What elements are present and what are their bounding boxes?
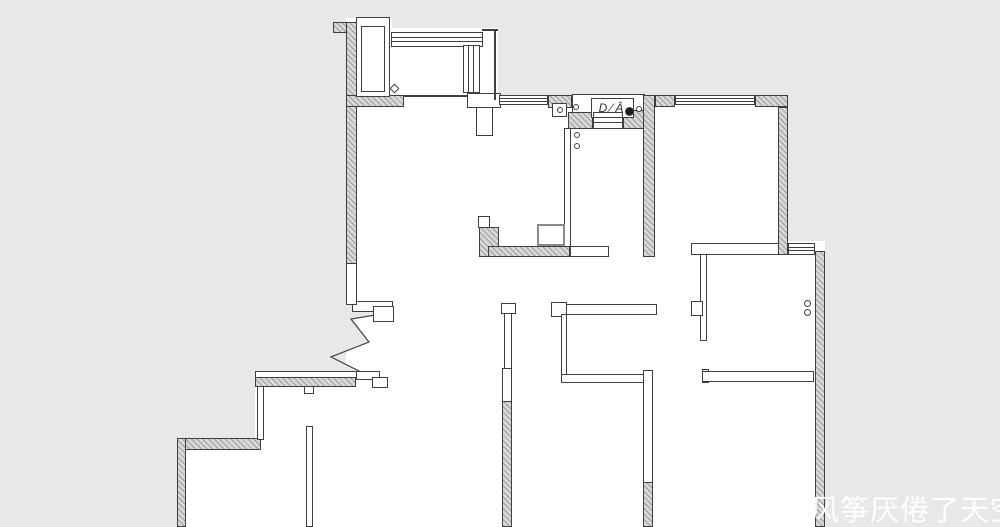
hinge-dot <box>573 104 579 110</box>
partition-wall <box>478 216 490 228</box>
partition-wall <box>502 368 512 402</box>
load-bearing-wall <box>177 438 261 450</box>
load-bearing-wall <box>643 95 655 257</box>
watermark-text: 风筝厌倦了天空 <box>810 487 1000 527</box>
load-bearing-wall <box>488 246 570 257</box>
partition-wall <box>257 386 264 440</box>
load-bearing-wall <box>778 107 788 255</box>
partition-wall <box>361 26 385 92</box>
partition-wall <box>564 128 571 247</box>
partition-wall <box>570 246 609 257</box>
hinge-dot <box>636 106 642 112</box>
hinge-dot <box>557 107 563 113</box>
partition-wall <box>643 370 653 483</box>
partition-wall <box>372 377 388 388</box>
load-bearing-wall <box>502 400 512 527</box>
partition-wall <box>561 314 567 378</box>
window <box>463 45 480 93</box>
partition-wall <box>691 301 703 316</box>
hinge-dot <box>574 132 580 138</box>
hinge-dot <box>804 300 811 307</box>
load-bearing-wall <box>815 251 825 527</box>
railing-line <box>404 95 467 97</box>
window <box>675 95 755 105</box>
break-line <box>0 0 1000 527</box>
partition-wall <box>373 306 394 322</box>
partition-wall <box>700 254 707 341</box>
hinge-dot <box>804 309 811 316</box>
load-bearing-wall <box>643 481 653 527</box>
partition-wall <box>255 371 368 378</box>
window <box>788 243 815 255</box>
partition-wall <box>561 374 645 383</box>
load-bearing-wall <box>177 438 186 527</box>
partition-wall <box>702 371 814 382</box>
partition-wall <box>476 107 493 136</box>
partition-wall <box>306 426 313 527</box>
entry-door-label: D⁄Ā <box>591 98 634 118</box>
hinge-dot <box>574 143 580 149</box>
railing-line <box>494 29 496 100</box>
partition-wall <box>346 263 357 305</box>
load-bearing-wall <box>655 95 675 107</box>
load-bearing-wall <box>755 95 788 107</box>
floor-plan: D⁄Ā 风筝厌倦了天空 <box>0 0 1000 527</box>
window <box>499 95 548 105</box>
partition-wall <box>304 386 314 394</box>
partition-wall <box>566 304 657 315</box>
partition-wall <box>504 313 512 370</box>
load-bearing-wall <box>568 112 593 129</box>
flue-duct <box>537 224 565 246</box>
